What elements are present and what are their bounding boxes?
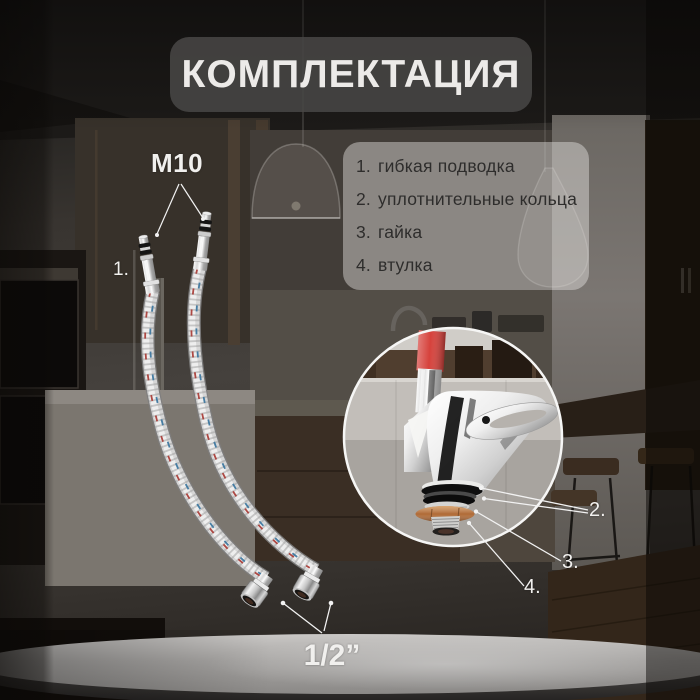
list-item: 2. уплотнительные кольца <box>356 183 589 216</box>
thread-size-label-top: M10 <box>146 148 208 179</box>
list-item: 1. гибкая подводка <box>356 150 589 183</box>
list-item-label: гайка <box>378 222 422 243</box>
orings-callout-2: 2. <box>589 499 606 522</box>
parts-list-panel: 1. гибкая подводка 2. уплотнительные кол… <box>343 142 589 290</box>
list-item-label: гибкая подводка <box>378 156 515 177</box>
thread-size-label-bottom: 1/2” <box>282 639 382 673</box>
list-item: 4. втулка <box>356 249 589 282</box>
list-item-number: 2. <box>356 189 371 210</box>
list-item-label: уплотнительные кольца <box>378 189 577 210</box>
page-title: КОМПЛЕКТАЦИЯ <box>182 53 521 97</box>
product-infographic: КОМПЛЕКТАЦИЯ 1. гибкая подводка 2. уплот… <box>0 0 700 700</box>
list-item-number: 1. <box>356 156 371 177</box>
list-item: 3. гайка <box>356 216 589 249</box>
hose-callout-1: 1. <box>113 259 129 281</box>
list-item-number: 4. <box>356 255 371 276</box>
list-item-label: втулка <box>378 255 433 276</box>
bushing-callout-4: 4. <box>524 576 541 599</box>
title-banner: КОМПЛЕКТАЦИЯ <box>170 37 532 112</box>
half-inch-pointer-lines <box>283 603 331 633</box>
nut-callout-3: 3. <box>562 551 579 574</box>
list-item-number: 3. <box>356 222 371 243</box>
